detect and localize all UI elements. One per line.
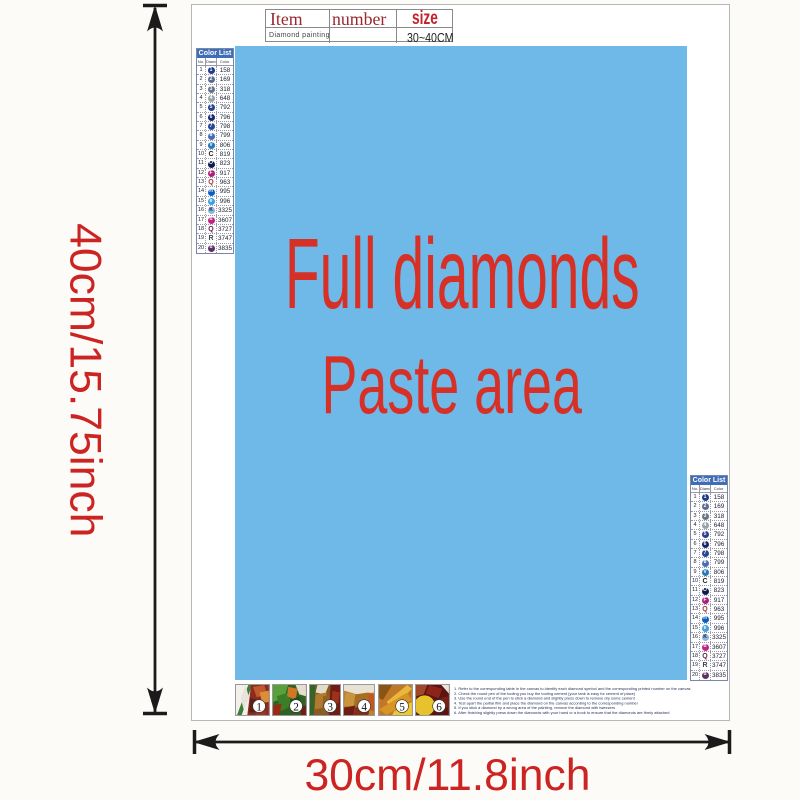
svg-text:3: 3 <box>327 701 333 713</box>
svg-text:1: 1 <box>256 701 262 713</box>
svg-text:2: 2 <box>293 701 299 713</box>
svg-text:4: 4 <box>361 701 367 713</box>
svg-text:5: 5 <box>399 701 405 713</box>
svg-text:6: 6 <box>436 701 442 713</box>
